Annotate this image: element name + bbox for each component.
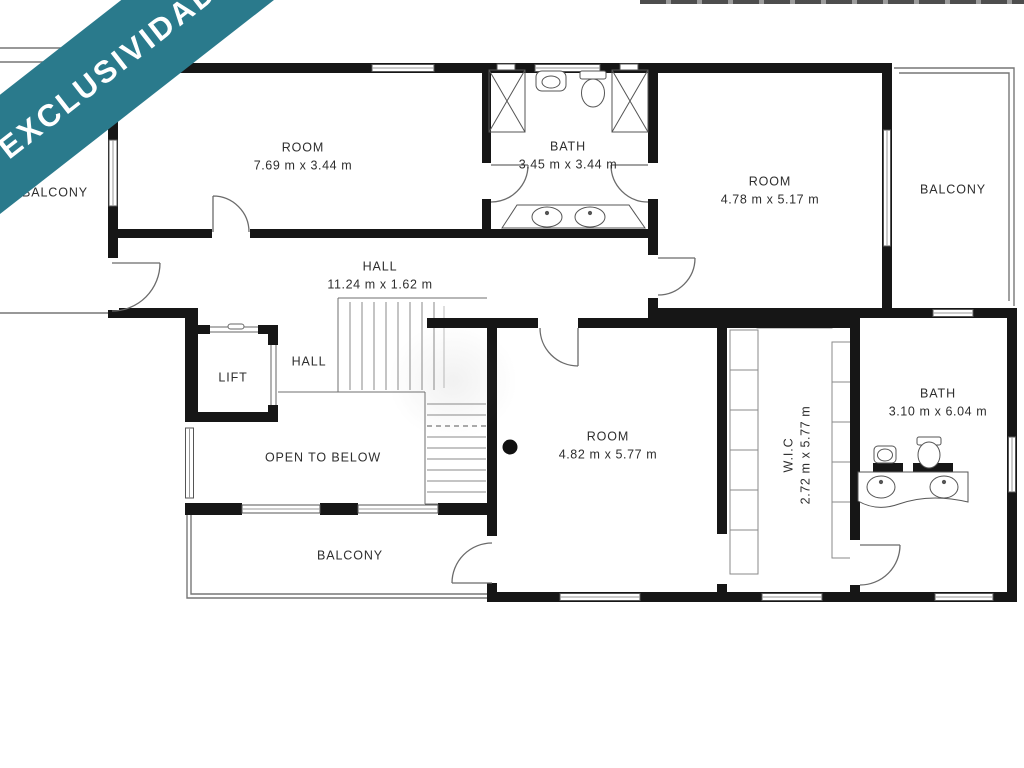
balcony-right-label: BALCONY <box>920 182 986 199</box>
room-center-dims: 4.82 m x 5.77 m <box>559 447 658 464</box>
room-top-left-dims: 7.69 m x 3.44 m <box>254 158 353 175</box>
double-sink-vanity-icon <box>502 205 645 228</box>
wic-dims: 2.72 m x 5.77 m <box>798 406 815 505</box>
room-top-left-label: ROOM <box>282 140 325 157</box>
washbasin-icon <box>874 446 896 463</box>
toilet-icon <box>917 437 941 468</box>
watermark-smudge <box>388 322 518 440</box>
room-top-right-label: ROOM <box>749 174 792 191</box>
shower-cabin-icon <box>489 64 525 132</box>
shower-cabin-icon <box>612 64 648 132</box>
wic-label: W.I.C <box>781 437 798 472</box>
bath-top-label: BATH <box>550 139 586 156</box>
open-to-below-label: OPEN TO BELOW <box>265 450 381 467</box>
bath-top-dims: 3.45 m x 3.44 m <box>519 157 618 174</box>
hall-small-label: HALL <box>292 354 327 371</box>
lift-sliding-door <box>210 324 276 405</box>
double-sink-vanity-icon <box>858 472 968 507</box>
floorplan-page: ROOM 7.69 m x 3.44 m BATH 3.45 m x 3.44 … <box>0 0 1024 768</box>
image-top-edge-strip <box>640 0 1024 4</box>
bath-right-dims: 3.10 m x 6.04 m <box>889 404 988 421</box>
lift-label: LIFT <box>218 370 247 387</box>
toilet-icon <box>580 71 606 107</box>
bath-right-label: BATH <box>920 386 956 403</box>
room-top-right-dims: 4.78 m x 5.17 m <box>721 192 820 209</box>
hall-main-dims: 11.24 m x 1.62 m <box>327 277 432 294</box>
balcony-bottom-label: BALCONY <box>317 548 383 565</box>
room-center-label: ROOM <box>587 429 630 446</box>
hall-main-label: HALL <box>363 259 398 276</box>
bidet-icon <box>536 71 566 91</box>
column-dot <box>503 440 518 455</box>
